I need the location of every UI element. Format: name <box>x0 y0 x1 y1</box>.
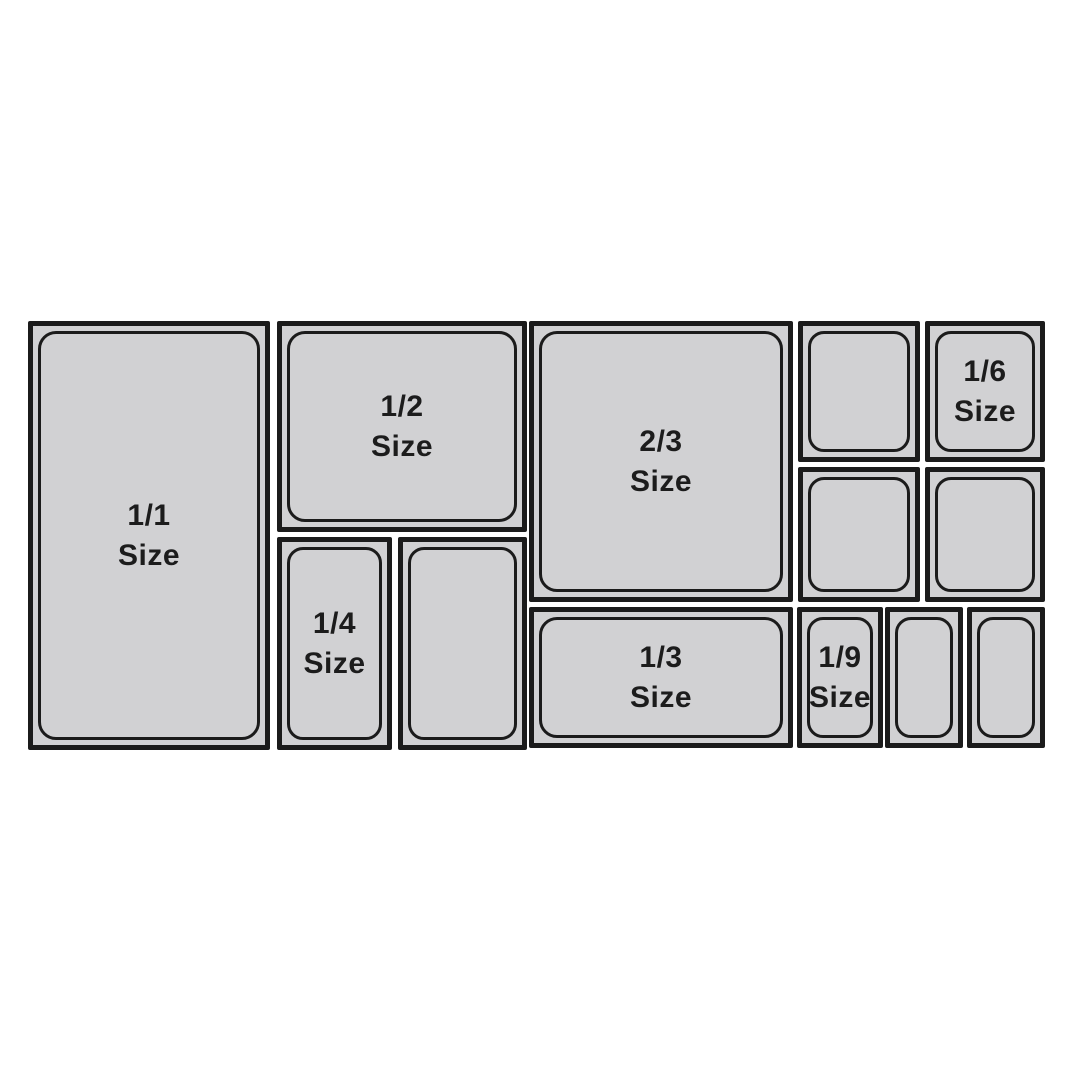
pan-fraction: 1/1 <box>127 496 170 536</box>
pan-1-1-size: 1/1 Size <box>28 321 270 750</box>
pan-ninth-unlabeled-mid <box>885 607 963 748</box>
pan-ninth-unlabeled-right <box>967 607 1045 748</box>
pan-label <box>930 472 1040 597</box>
pan-sixth-unlabeled-left <box>798 467 920 602</box>
pan-2-3-size: 2/3 Size <box>529 321 793 602</box>
pan-label: 1/3 Size <box>534 612 788 743</box>
pan-label <box>890 612 958 743</box>
pan-label: 1/4 Size <box>282 542 387 745</box>
pan-fraction: 1/2 <box>380 387 423 427</box>
pan-fraction: 1/3 <box>639 638 682 678</box>
pan-quarter-unlabeled <box>398 537 527 750</box>
pan-label <box>803 326 915 457</box>
pan-fraction: 2/3 <box>639 422 682 462</box>
pan-label: 1/1 Size <box>33 326 265 745</box>
pan-word: Size <box>954 392 1016 432</box>
pan-sixth-unlabeled-right <box>925 467 1045 602</box>
pan-label: 2/3 Size <box>534 326 788 597</box>
pan-fraction: 1/9 <box>818 638 861 678</box>
pan-word: Size <box>303 644 365 684</box>
pan-1-2-size: 1/2 Size <box>277 321 527 532</box>
pan-1-9-size: 1/9 Size <box>797 607 883 748</box>
pan-word: Size <box>630 462 692 502</box>
pan-word: Size <box>630 678 692 718</box>
pan-word: Size <box>118 536 180 576</box>
pan-label: 1/2 Size <box>282 326 522 527</box>
pan-sixth-unlabeled-top <box>798 321 920 462</box>
pan-label: 1/9 Size <box>802 612 878 743</box>
pan-label <box>803 472 915 597</box>
pan-1-6-size: 1/6 Size <box>925 321 1045 462</box>
pan-fraction: 1/6 <box>963 352 1006 392</box>
pan-1-4-size: 1/4 Size <box>277 537 392 750</box>
pan-1-3-size: 1/3 Size <box>529 607 793 748</box>
pan-fraction: 1/4 <box>313 604 356 644</box>
pan-label <box>403 542 522 745</box>
pan-label <box>972 612 1040 743</box>
pan-word: Size <box>809 678 871 718</box>
pan-word: Size <box>371 427 433 467</box>
pan-size-diagram: 1/1 Size 1/2 Size 1/4 Size 2/3 Size 1/3 … <box>0 0 1080 1080</box>
pan-label: 1/6 Size <box>930 326 1040 457</box>
